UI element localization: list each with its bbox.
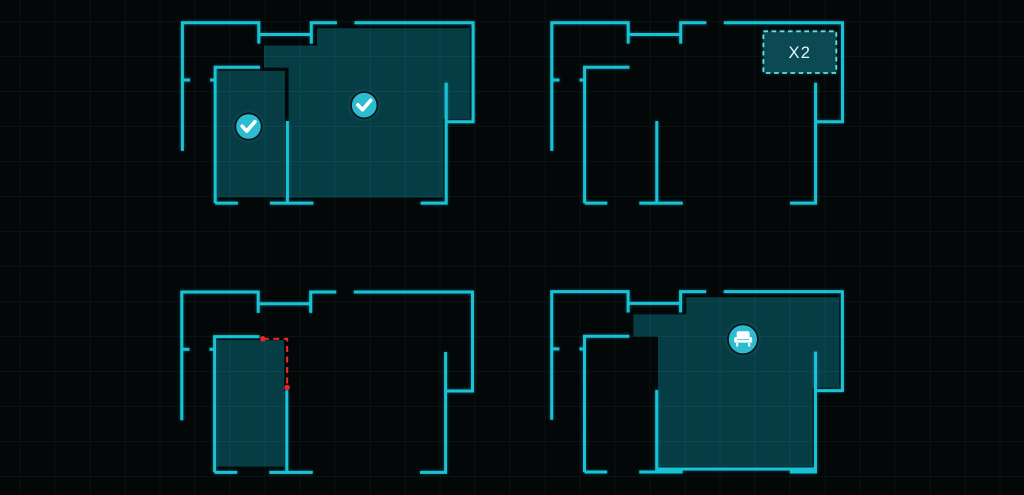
svg-text:X2: X2 bbox=[789, 44, 812, 62]
